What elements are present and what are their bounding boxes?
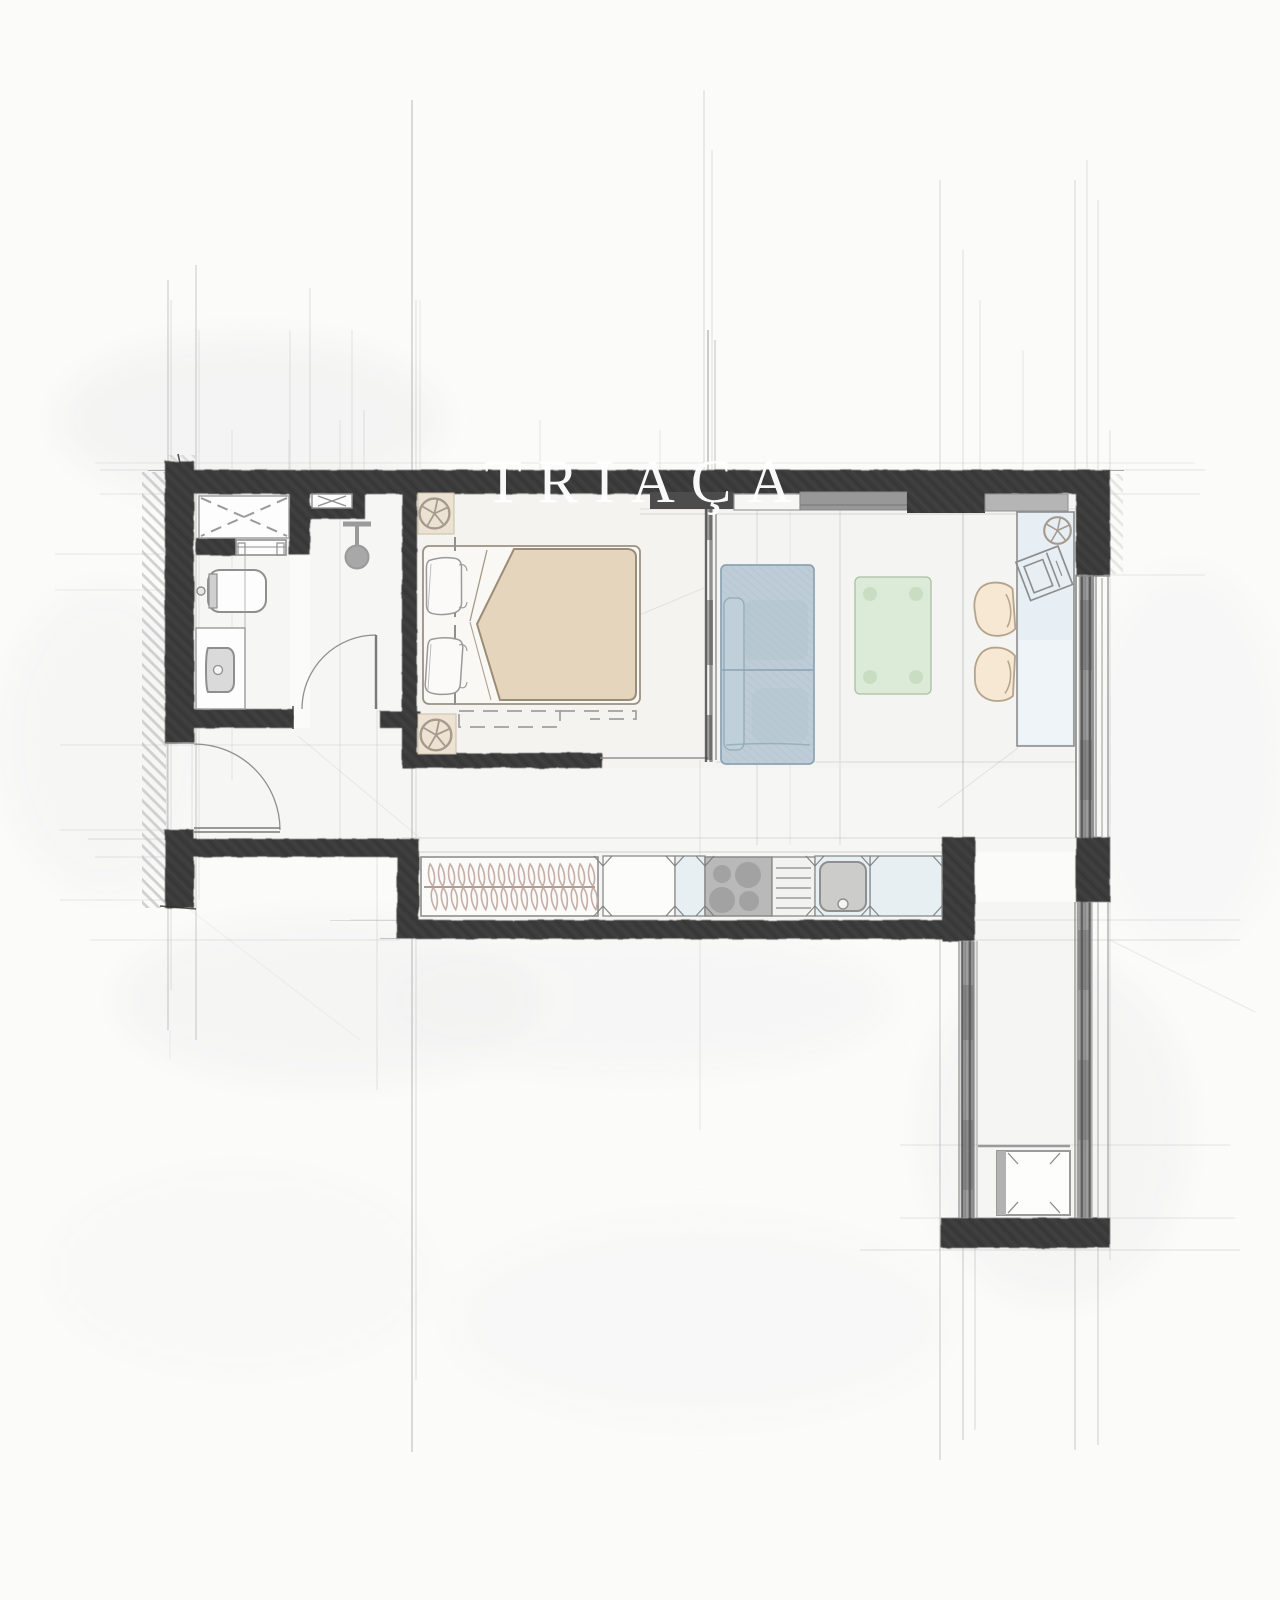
svg-text:TRIAÇA: TRIAÇA (484, 449, 807, 516)
